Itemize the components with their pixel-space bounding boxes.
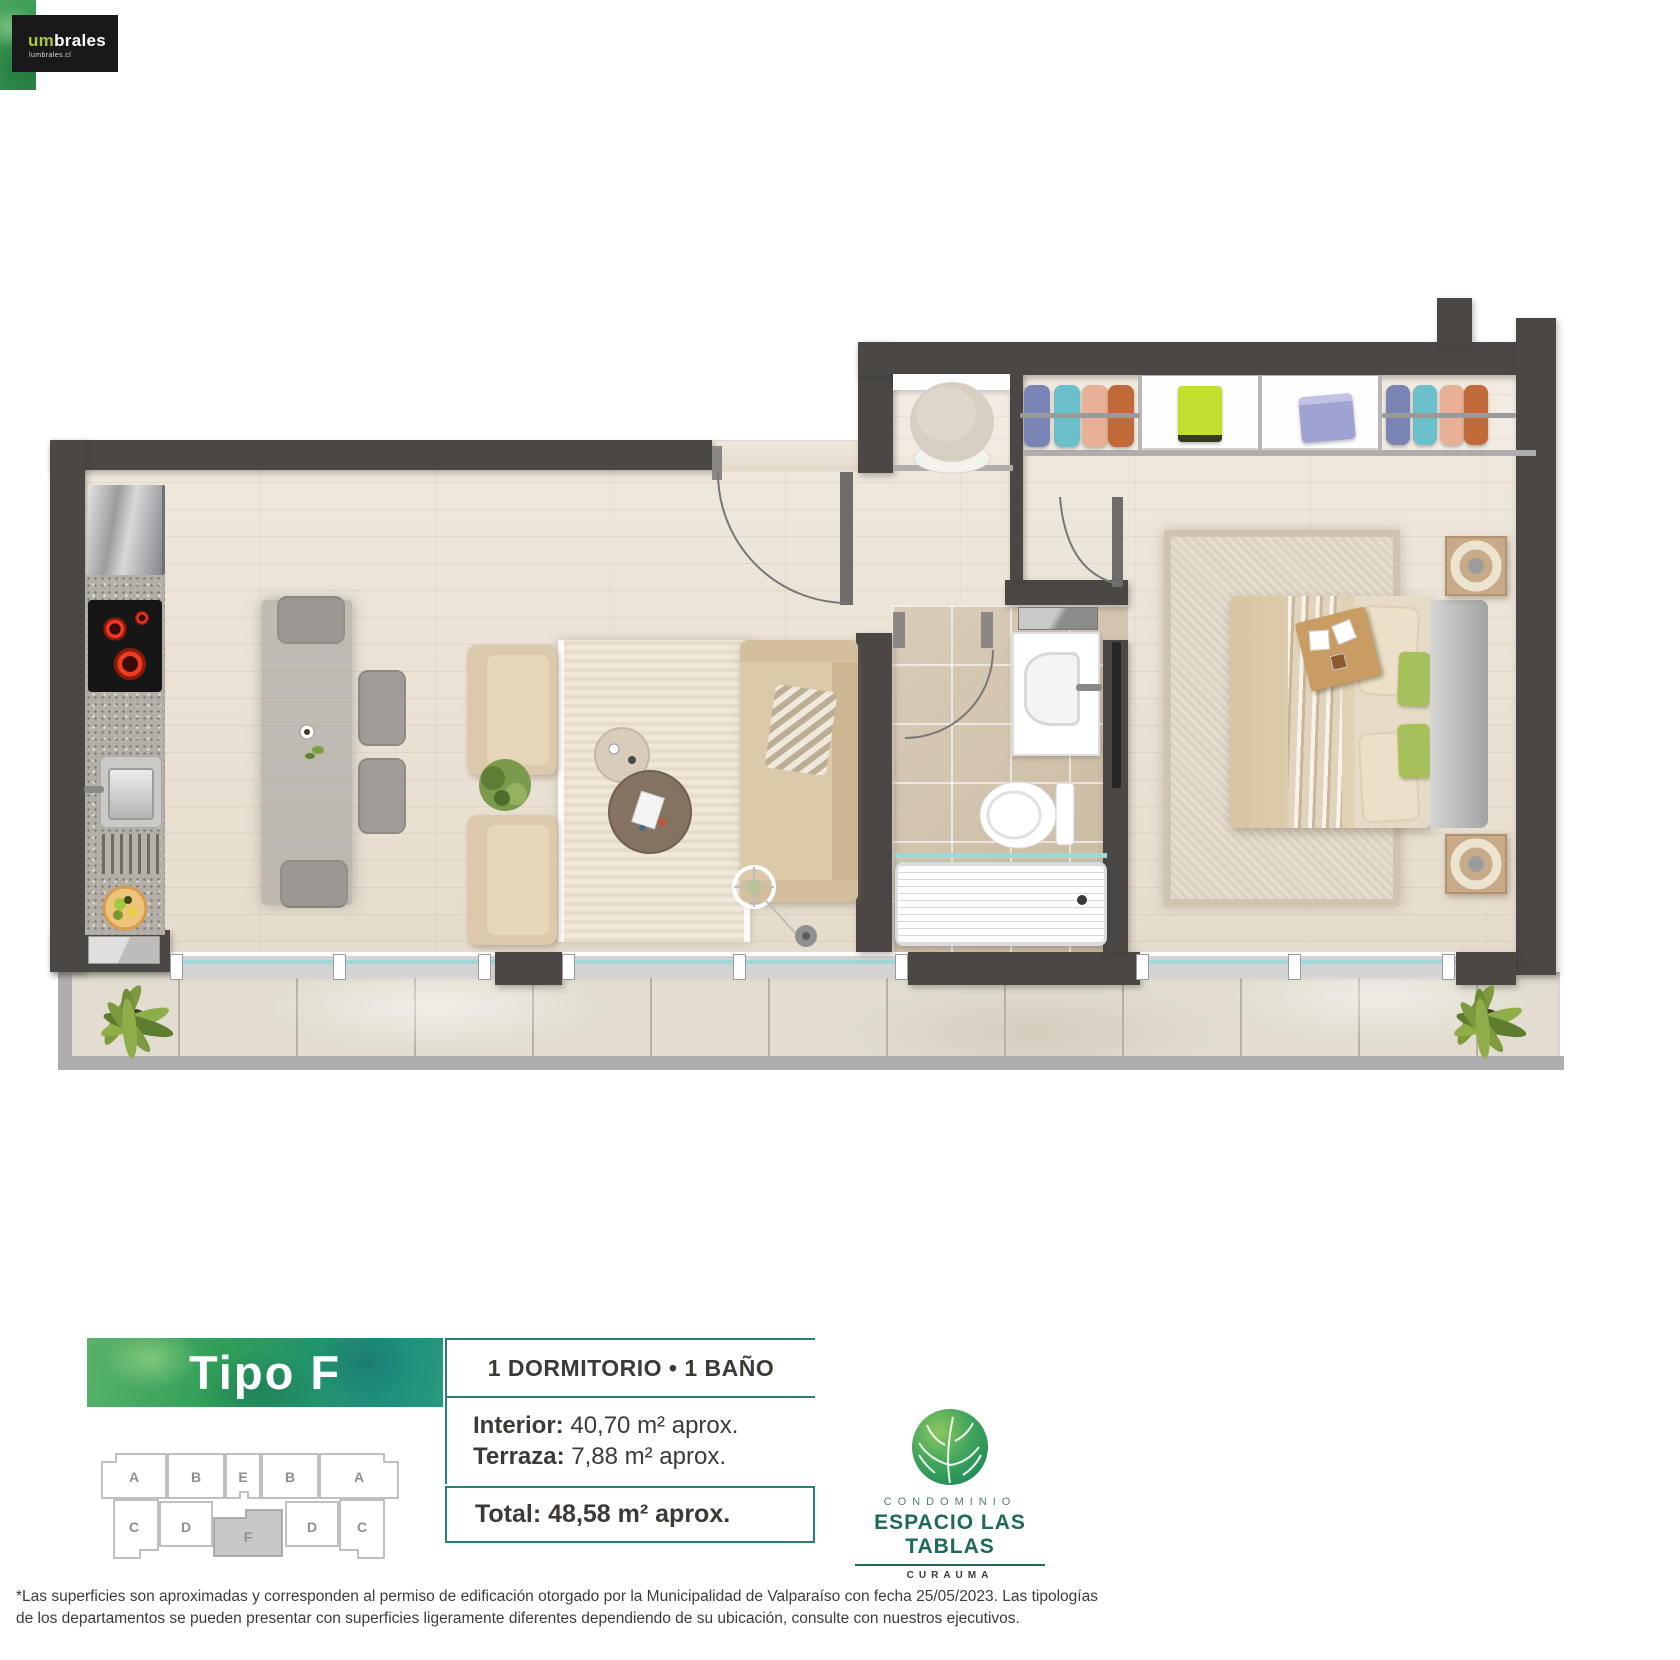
- nightstand: [1445, 834, 1507, 894]
- bath-door-jamb-left: [893, 612, 905, 648]
- dining-table: [262, 600, 352, 905]
- unit-config: 1 DORMITORIO • 1 BAÑO: [447, 1340, 815, 1396]
- window-cap: [733, 954, 746, 980]
- armchair: [467, 645, 557, 775]
- burner: [112, 646, 148, 682]
- burner: [134, 610, 150, 626]
- wall-bathroom-left: [856, 633, 892, 952]
- closet-divider: [1258, 375, 1262, 451]
- entry-floor: [712, 440, 858, 472]
- closet-rod: [1020, 413, 1140, 418]
- project-underline: [855, 1564, 1045, 1566]
- nightstand: [1445, 536, 1507, 596]
- wall-window-mullion: [495, 952, 562, 985]
- svg-text:A: A: [129, 1469, 139, 1485]
- sofa-armrest: [740, 880, 858, 902]
- svg-text:A: A: [354, 1469, 364, 1485]
- svg-text:C: C: [357, 1519, 367, 1535]
- umbrales-brales: brales: [54, 31, 106, 50]
- living-rug: [558, 640, 750, 942]
- sofa-armrest: [740, 640, 858, 662]
- total-area: Total: 48,58 m² aprox.: [447, 1500, 730, 1529]
- disclaimer-line-2: de los departamentos se pueden presentar…: [16, 1608, 1156, 1630]
- window-cap: [333, 954, 346, 980]
- kitchen-cabinet: [88, 936, 160, 964]
- bath-door-jamb-right: [981, 612, 993, 648]
- closet-rail: [1023, 450, 1536, 456]
- wall-top-living: [50, 440, 712, 470]
- entry-door-jamb: [712, 446, 722, 480]
- closet-nook-back: [893, 374, 1010, 390]
- terrace-rail-bottom: [58, 1056, 1564, 1070]
- folded-shirt-lavender: [1298, 393, 1356, 444]
- sofa-throw-blanket: [764, 684, 837, 776]
- wall-bottom-mid: [908, 952, 1140, 985]
- type-label: Tipo F: [189, 1345, 341, 1400]
- total-area-box: Total: 48,58 m² aprox.: [445, 1486, 815, 1543]
- bathroom-mirror: [1018, 607, 1098, 630]
- wall-top-right-notch: [1437, 298, 1472, 345]
- svg-text:D: D: [307, 1519, 317, 1535]
- burner: [102, 616, 128, 642]
- project-category: CONDOMINIO: [830, 1496, 1070, 1508]
- bathroom-faucet: [1076, 684, 1102, 691]
- wall-nook-divider: [1010, 372, 1023, 580]
- type-banner: Tipo F: [87, 1338, 443, 1407]
- window-cap: [170, 954, 183, 980]
- wall-bottom-bedroom-right: [1456, 952, 1516, 985]
- bedroom-door-leaf: [1112, 497, 1123, 587]
- entry-door-leaf: [840, 472, 853, 605]
- leaf-emblem: [905, 1405, 995, 1490]
- unit-specs: 1 DORMITORIO • 1 BAÑO Interior: 40,70 m²…: [445, 1338, 815, 1484]
- sofa-back: [832, 640, 858, 902]
- bed-headboard: [1430, 600, 1488, 828]
- umbrales-domain: lumbrales.cl: [29, 52, 71, 59]
- disclaimer: *Las superficies son aproximadas y corre…: [16, 1586, 1156, 1630]
- bed-accent-pillow: [1397, 651, 1431, 706]
- terrace-area: Terraza: 7,88 m² aprox.: [473, 1441, 815, 1472]
- window-cap: [895, 954, 908, 980]
- bathtub: [895, 862, 1107, 946]
- bathroom-sink: [1024, 652, 1080, 726]
- dining-chair: [358, 670, 406, 746]
- closet-rod: [1382, 413, 1516, 418]
- interior-area: Interior: 40,70 m² aprox.: [473, 1410, 815, 1441]
- dining-chair: [358, 758, 406, 834]
- umbrales-wordmark: umbrales: [28, 31, 106, 51]
- bed-accent-pillow: [1397, 723, 1431, 778]
- building-keyplan: A B E B A C D D C F: [100, 1442, 400, 1567]
- disclaimer-line-1: *Las superficies son aproximadas y corre…: [16, 1586, 1156, 1608]
- wall-right: [1516, 318, 1556, 975]
- wall-bathroom-top: [1005, 580, 1128, 605]
- closet-nook-rail: [893, 465, 1013, 471]
- umbrales-um: um: [28, 31, 54, 50]
- window-cap: [1288, 954, 1301, 980]
- umbrales-logo: umbrales lumbrales.cl: [12, 15, 118, 72]
- armchair: [467, 815, 557, 945]
- project-logo: CONDOMINIO ESPACIO LAS TABLAS CURAUMA: [830, 1405, 1070, 1581]
- terrace-floor: [60, 972, 1560, 1058]
- svg-text:B: B: [191, 1469, 201, 1485]
- fridge: [88, 485, 165, 575]
- kitchen-faucet: [84, 786, 104, 793]
- sofa: [740, 640, 858, 902]
- project-name: ESPACIO LAS TABLAS: [830, 1511, 1070, 1559]
- shower-glass: [895, 853, 1107, 858]
- svg-text:C: C: [129, 1519, 139, 1535]
- window-cap: [562, 954, 575, 980]
- svg-text:D: D: [181, 1519, 191, 1535]
- folded-tshirt-lime: [1178, 386, 1222, 442]
- window-cap: [1442, 954, 1455, 980]
- dish-rack: [102, 834, 160, 874]
- window-cap: [1136, 954, 1149, 980]
- project-location: CURAUMA: [830, 1570, 1070, 1581]
- floorplan: [50, 300, 1575, 1080]
- svg-text:B: B: [285, 1469, 295, 1485]
- svg-text:E: E: [238, 1469, 247, 1485]
- svg-text:F: F: [244, 1529, 253, 1545]
- watercolor-strip: [1603, 0, 1680, 1660]
- wall-closet-top: [858, 342, 1516, 375]
- kitchen-sink-basin: [108, 768, 154, 820]
- wall-left: [50, 440, 85, 972]
- window-cap: [478, 954, 491, 980]
- tv: [1112, 642, 1121, 788]
